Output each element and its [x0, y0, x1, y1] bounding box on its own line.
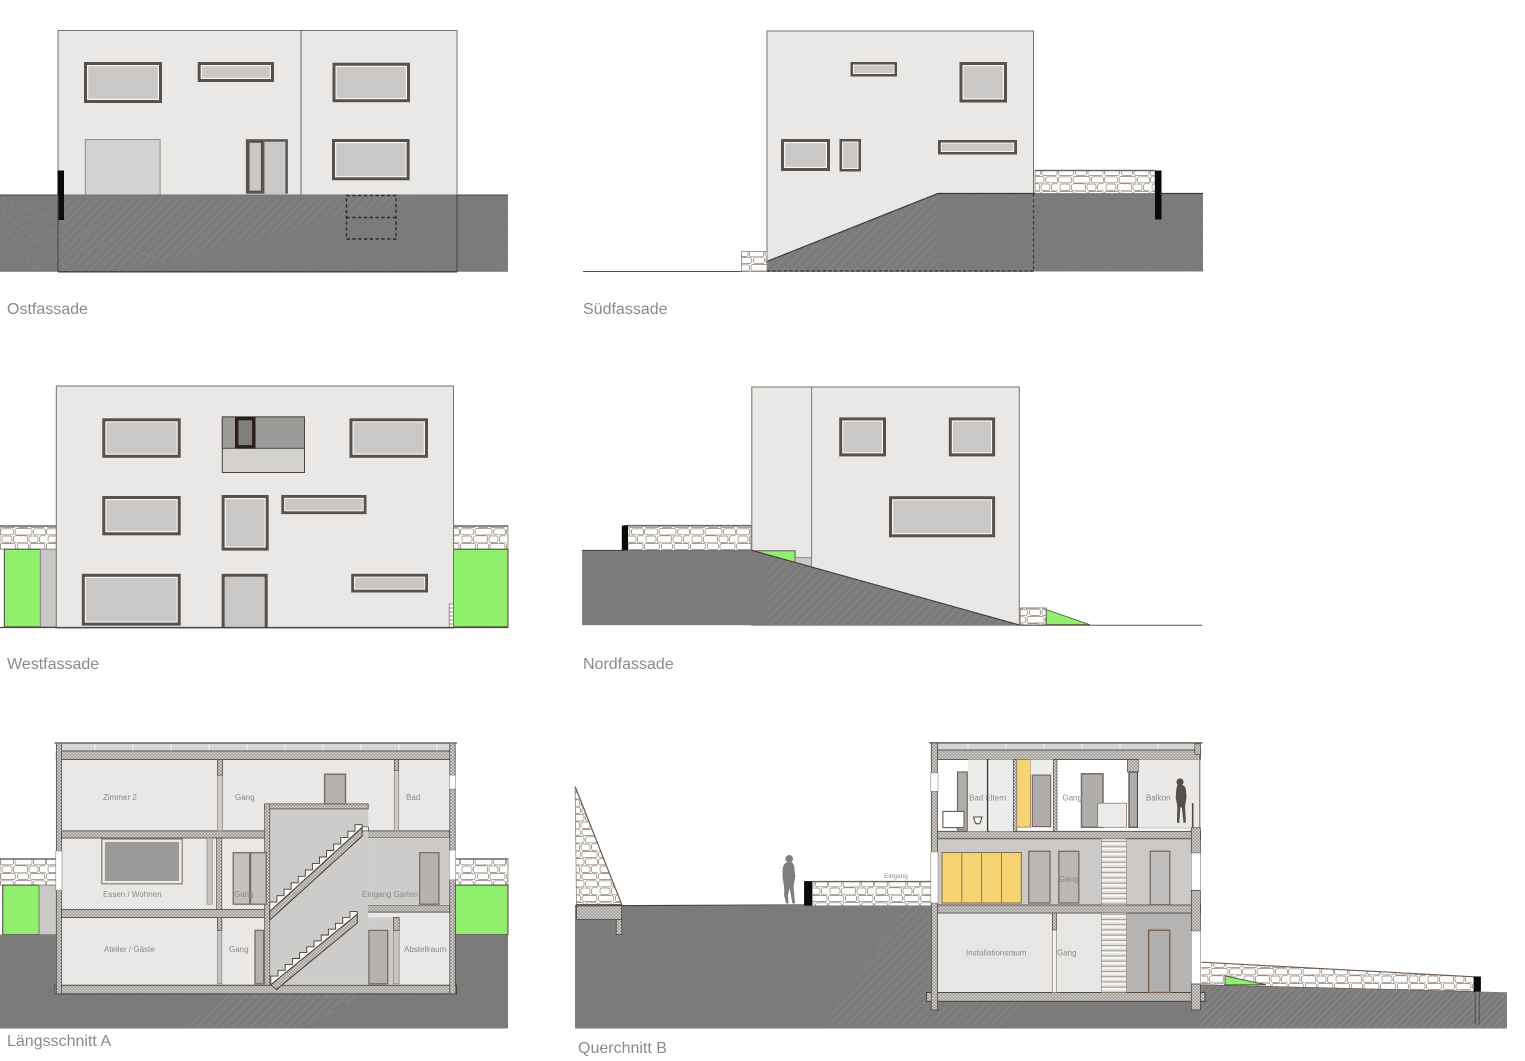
svg-text:Eingang Garten: Eingang Garten [362, 890, 418, 899]
svg-text:Gang: Gang [234, 890, 254, 899]
svg-text:Essen / Wohnen: Essen / Wohnen [103, 890, 162, 899]
svg-text:Südfassade: Südfassade [583, 301, 668, 318]
svg-text:Eingang: Eingang [884, 873, 908, 880]
svg-text:Atelier / Gäste: Atelier / Gäste [104, 945, 155, 954]
svg-text:Westfassade: Westfassade [7, 656, 99, 673]
svg-text:Gang: Gang [1057, 949, 1077, 958]
svg-text:Ostfassade: Ostfassade [7, 301, 88, 318]
svg-text:Gang: Gang [229, 945, 249, 954]
svg-text:Gang: Gang [235, 793, 255, 802]
svg-text:Längsschnitt A: Längsschnitt A [7, 1033, 111, 1050]
svg-text:Abstellraum: Abstellraum [404, 945, 447, 954]
svg-text:Installationsraum: Installationsraum [966, 949, 1027, 958]
svg-text:Nordfassade: Nordfassade [583, 656, 674, 673]
svg-text:Gang: Gang [1059, 875, 1079, 884]
svg-text:Zimmer 2: Zimmer 2 [103, 793, 137, 802]
svg-text:Bad: Bad [406, 793, 420, 802]
svg-text:Querchnitt B: Querchnitt B [578, 1040, 667, 1057]
svg-text:Balkon: Balkon [1146, 794, 1170, 803]
svg-text:Gang: Gang [1063, 794, 1083, 803]
svg-text:Bad Eltern: Bad Eltern [969, 794, 1006, 803]
